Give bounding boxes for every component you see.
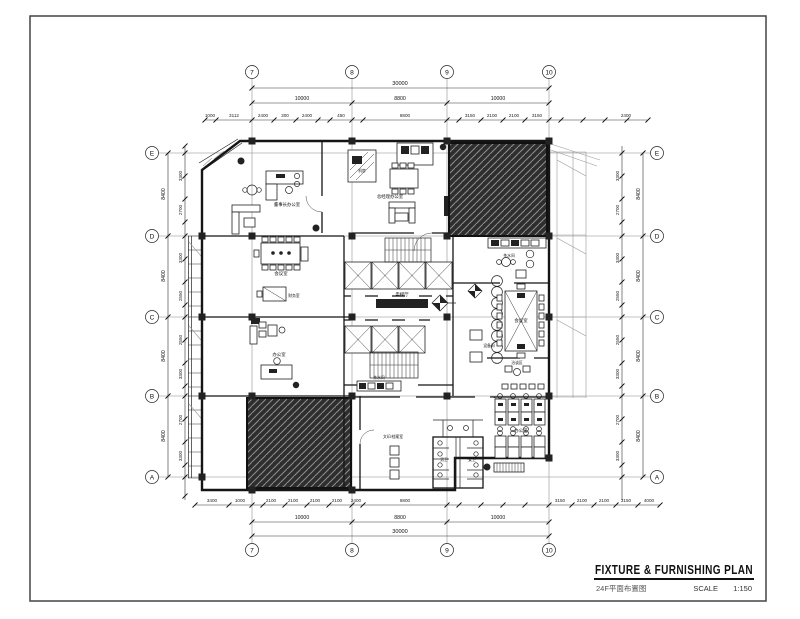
dimension-top: 30000 10000 8800 10000 1000 3112 2400 30… [203, 81, 651, 123]
drawing-title: FIXTURE & FURNISHING PLAN [595, 563, 753, 577]
dim-bottom-span: 10000 [295, 515, 310, 521]
dim-left-chain: 2700 [178, 204, 183, 215]
room-label-lobby: 电梯厅 [395, 291, 409, 298]
room-label-finance: 财务室 [288, 293, 300, 298]
lounge-furniture [505, 366, 530, 376]
dim-bottom-overall: 30000 [392, 529, 408, 535]
dimension-left: 3300 2700 3300 2550 2550 3300 2700 3300 … [161, 144, 188, 501]
dimension-right: 3300 2700 3300 2550 2550 3300 2700 3300 … [615, 146, 646, 500]
dim-left-chain: 2700 [178, 414, 183, 425]
grid-bubble-row: E [655, 150, 660, 157]
grid-bubble-row: B [150, 393, 155, 400]
dim-top-span: 10000 [491, 96, 506, 102]
dim-right-chain: 2550 [615, 290, 620, 301]
dim-left-chain: 2550 [178, 334, 183, 345]
drawing-subtitle: 24F平面布置图 [596, 583, 646, 593]
dim-bottom-chain: 1000 [235, 498, 246, 503]
dimension-bottom: 3400 1000 2100 2100 2100 2100 2400 8800 … [193, 498, 663, 539]
dim-right-chain: 3300 [615, 368, 620, 379]
grid-bubble-row: B [655, 393, 660, 400]
finance-room-furniture [257, 287, 286, 301]
scale-value: 1:150 [733, 584, 752, 593]
dim-left-span: 8400 [161, 350, 167, 362]
copy-room-furniture [357, 381, 401, 479]
title-block: FIXTURE & FURNISHING PLAN 24F平面布置图 SCALE… [594, 563, 754, 593]
page-border [30, 16, 766, 601]
grid-bubble-col: 10 [545, 69, 553, 76]
service-room-top [397, 143, 433, 165]
dim-top-chain: 2400 [258, 113, 269, 118]
dim-left-chain: 3300 [178, 368, 183, 379]
dim-top-chain: 2400 [302, 113, 313, 118]
dim-top-chain: 2100 [487, 113, 498, 118]
stair-upper [385, 238, 431, 262]
dim-bottom-chain: 3150 [621, 498, 632, 503]
room-label-lounge: 洽谈区 [511, 360, 523, 365]
curtain-wall-left [188, 236, 202, 478]
dim-bottom-chain: 2100 [266, 498, 277, 503]
room-label-gm: 总经理办公室 [377, 193, 404, 200]
dim-bottom-chain: 3400 [207, 498, 218, 503]
dim-left-chain: 2550 [178, 290, 183, 301]
floor-plan-svg: 30000 10000 8800 10000 1000 3112 2400 30… [0, 0, 800, 619]
hatched-area-top-right [449, 143, 547, 236]
room-label-pantry: 茶水间 [503, 253, 515, 258]
room-label-equipment: 设备间 [483, 343, 495, 348]
room-label-meeting-right: 会议室 [514, 317, 528, 324]
room-label-machine: 机房 [358, 168, 366, 173]
dim-top-overall: 30000 [392, 81, 408, 87]
dim-right-span: 8400 [636, 188, 642, 200]
stair-lower [370, 352, 418, 378]
chairman-office-furniture [232, 158, 320, 235]
dim-bottom-span: 10000 [491, 515, 506, 521]
dim-bottom-chain: 2100 [599, 498, 610, 503]
dim-bottom-chain: 2100 [332, 498, 343, 503]
dim-bottom-chain: 4000 [644, 498, 655, 503]
dim-right-span: 8400 [636, 270, 642, 282]
dim-top-chain: 300 [281, 113, 289, 118]
room-label-wc-left: 男卫 [440, 457, 448, 462]
scale-label: SCALE [693, 584, 718, 593]
grid-bubble-row: A [150, 474, 155, 481]
dim-right-chain: 2550 [615, 334, 620, 345]
elevator-bank-upper [344, 262, 453, 296]
dim-top-chain: 1000 [205, 113, 216, 118]
column-screen [492, 276, 503, 364]
room-label-wc-right: 女卫 [468, 457, 476, 462]
dim-right-chain: 2700 [615, 414, 620, 425]
dim-top-chain: 3150 [532, 113, 543, 118]
dim-right-chain: 2700 [615, 204, 620, 215]
lobby-reception-desk [376, 299, 428, 308]
machine-room [348, 150, 376, 182]
grid-bubble-col: 8 [350, 69, 354, 76]
facade-right [549, 144, 600, 398]
room-label-meeting-left: 会议室 [274, 270, 288, 277]
dim-right-chain: 3300 [615, 252, 620, 263]
dim-right-span: 8400 [636, 350, 642, 362]
grid-bubble-row: D [150, 233, 155, 240]
dim-left-chain: 3300 [178, 450, 183, 461]
room-label-copy: 文印/档案室 [383, 434, 403, 439]
room-label-chairman: 董事长办公室 [274, 201, 301, 208]
dim-right-chain: 3300 [615, 170, 620, 181]
equipment-rooms [470, 330, 482, 362]
grid-bubble-col: 10 [545, 547, 553, 554]
section-marker [468, 284, 482, 298]
dim-bottom-span: 8800 [394, 515, 406, 521]
toilet-rooms [433, 420, 483, 488]
dim-right-chain: 3300 [615, 450, 620, 461]
dim-left-chain: 3300 [178, 170, 183, 181]
dim-bottom-chain: 8800 [400, 498, 411, 503]
room-label-open-office: 办公区 [514, 427, 528, 434]
pantry-furniture [488, 238, 546, 278]
dim-top-chain: 8800 [400, 113, 411, 118]
hatched-area-bottom-left [247, 398, 351, 488]
meeting-room-left-furniture [254, 237, 308, 270]
dim-bottom-chain: 2400 [351, 498, 362, 503]
dim-top-chain: 3112 [229, 113, 239, 118]
grid-bubble-row: E [150, 150, 155, 157]
dim-bottom-chain: 2100 [577, 498, 588, 503]
dim-top-chain: 2100 [509, 113, 520, 118]
grid-bubble-col: 7 [250, 69, 254, 76]
room-label-office: 办公室 [272, 351, 286, 358]
dim-top-chain: 450 [337, 113, 345, 118]
drawing-sheet: 30000 10000 8800 10000 1000 3112 2400 30… [0, 0, 800, 619]
grid-bubble-col: 9 [445, 69, 449, 76]
grid-bubble-row: D [655, 233, 660, 240]
grid-bubble-col: 7 [250, 547, 254, 554]
grid-bubble-row: A [655, 474, 660, 481]
dim-left-span: 8400 [161, 270, 167, 282]
grid-bubble-col: 9 [445, 547, 449, 554]
dim-right-span: 8400 [636, 430, 642, 442]
dim-top-chain: 3150 [465, 113, 476, 118]
room-label-pantry-small: 茶水间 [373, 375, 385, 380]
dim-bottom-chain: 2100 [288, 498, 299, 503]
dim-left-span: 8400 [161, 430, 167, 442]
dim-top-chain: 2400 [621, 113, 632, 118]
grid-bubble-col: 8 [350, 547, 354, 554]
dim-bottom-chain: 3150 [555, 498, 566, 503]
dim-bottom-chain: 2100 [310, 498, 321, 503]
dim-left-span: 8400 [161, 188, 167, 200]
dim-left-chain: 3300 [178, 252, 183, 263]
grid-bubble-row: C [655, 314, 660, 321]
dim-top-span: 8800 [394, 96, 406, 102]
dim-top-span: 10000 [295, 96, 310, 102]
grid-bubble-row: C [150, 314, 155, 321]
elevator-bank-lower [344, 320, 430, 353]
